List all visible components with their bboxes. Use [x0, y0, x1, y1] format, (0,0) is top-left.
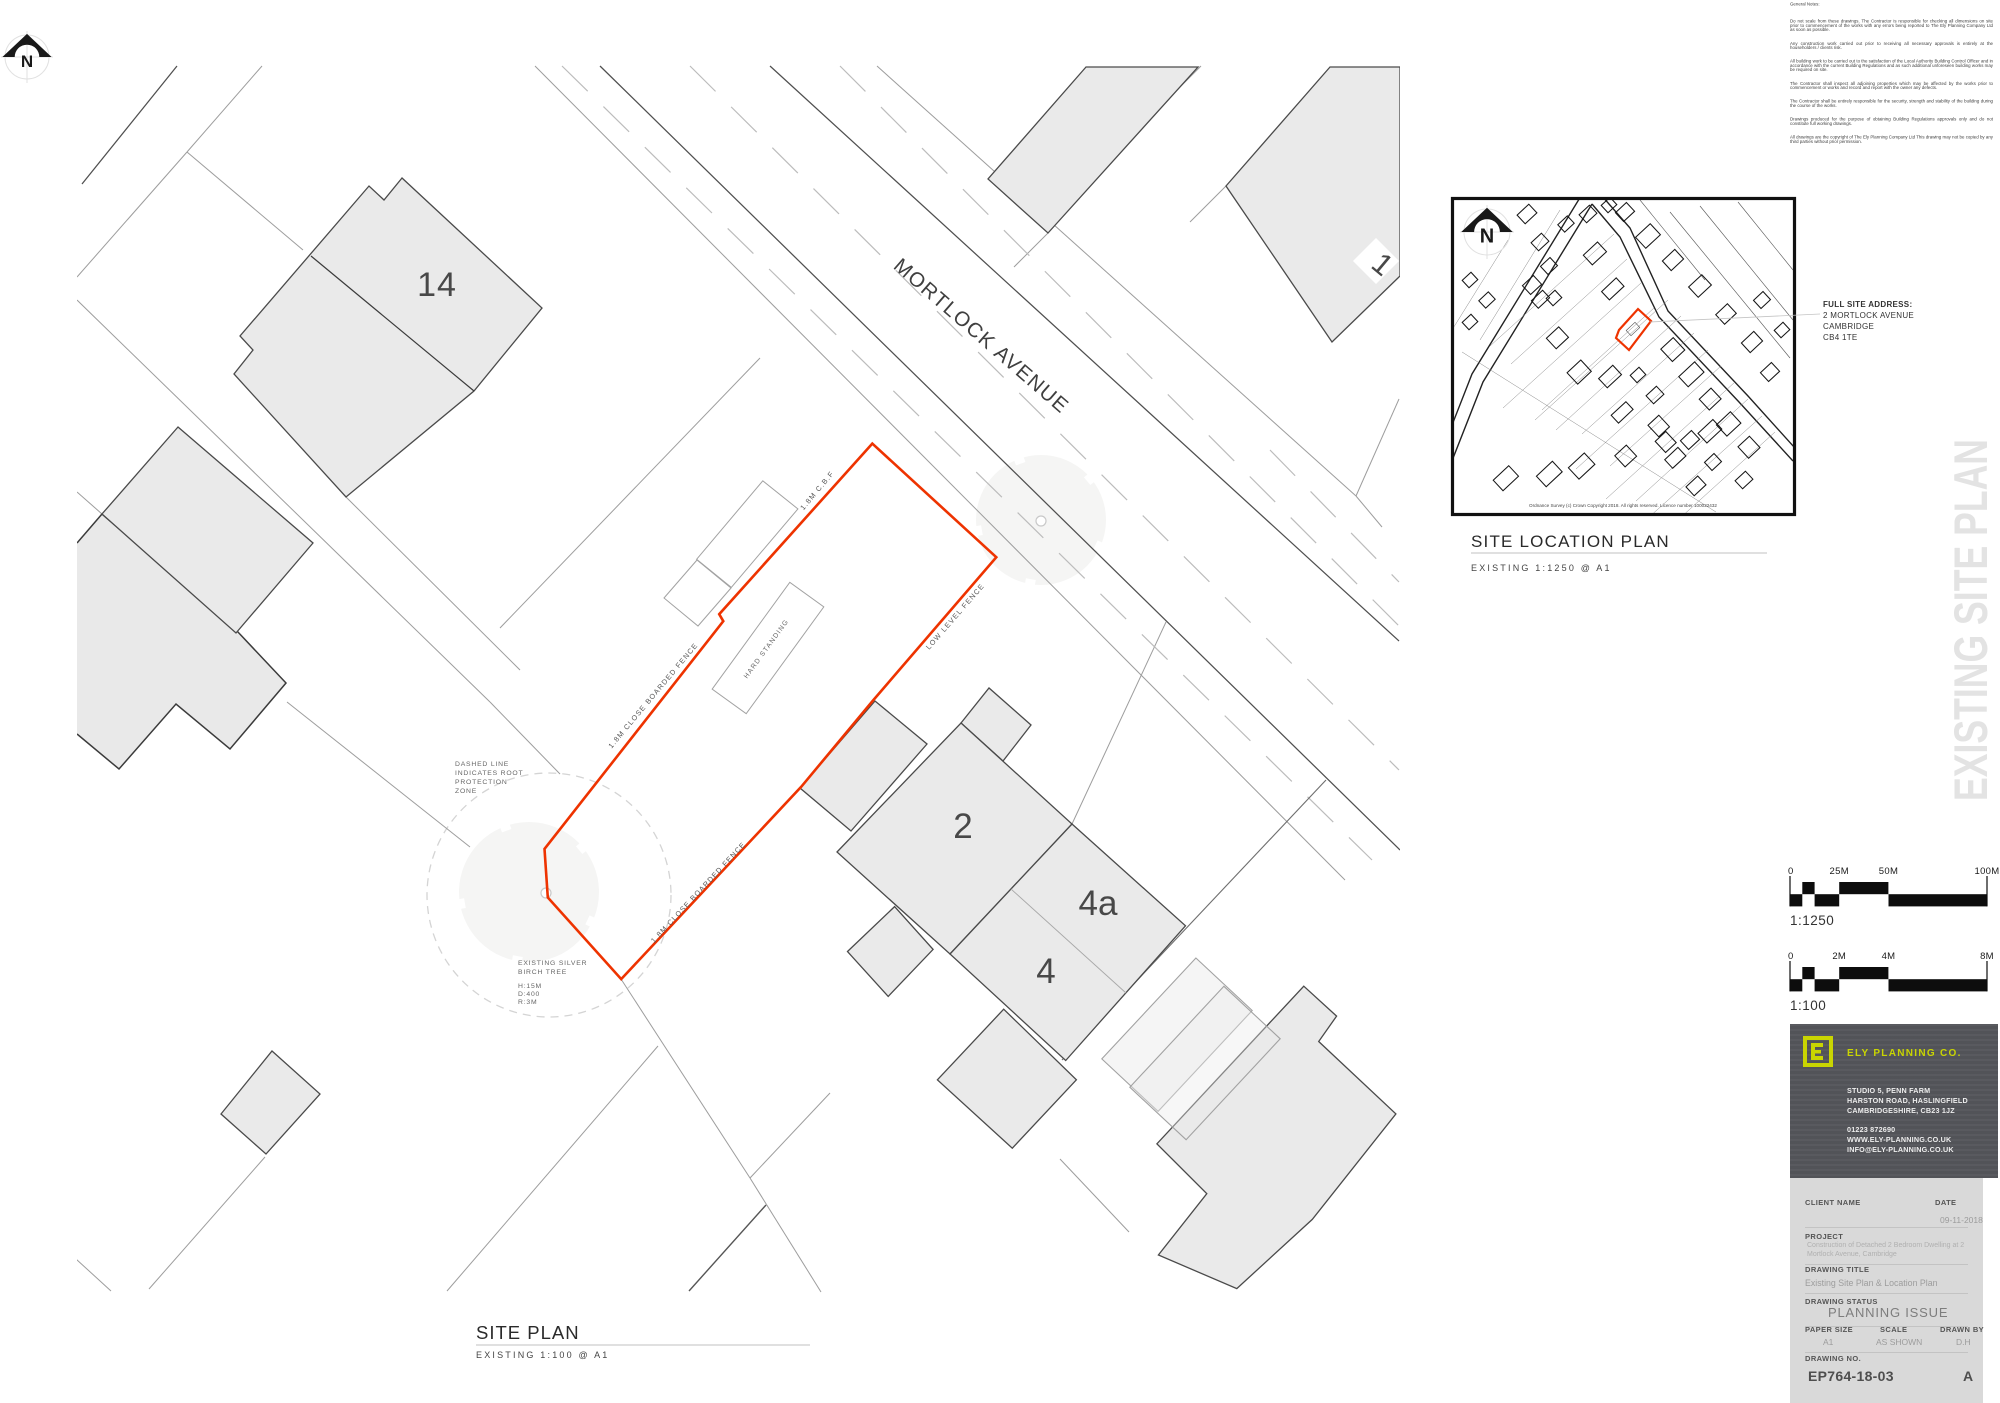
svg-text:0: 0	[1788, 951, 1794, 962]
svg-text:D:400: D:400	[518, 991, 540, 998]
svg-text:EXISTING SILVER: EXISTING SILVER	[518, 960, 587, 967]
svg-text:SITE LOCATION PLAN: SITE LOCATION PLAN	[1471, 532, 1670, 551]
svg-text:Ordnance Survey (c) Crown Copy: Ordnance Survey (c) Crown Copyright 2018…	[1529, 503, 1717, 508]
svg-text:CB4 1TE: CB4 1TE	[1823, 333, 1858, 342]
svg-text:N: N	[21, 52, 33, 71]
svg-text:4: 4	[1036, 952, 1055, 991]
svg-text:4a: 4a	[1079, 884, 1118, 923]
svg-text:EXISTING 1:100 @ A1: EXISTING 1:100 @ A1	[476, 1350, 609, 1360]
svg-text:4M: 4M	[1882, 951, 1896, 962]
svg-text:PROTECTION: PROTECTION	[455, 779, 508, 786]
svg-text:14: 14	[417, 266, 457, 304]
svg-text:0: 0	[1788, 866, 1794, 877]
svg-text:2: 2	[953, 807, 972, 846]
svg-text:ZONE: ZONE	[455, 788, 477, 795]
svg-text:H:15M: H:15M	[518, 983, 542, 990]
svg-text:R:3M: R:3M	[518, 999, 537, 1006]
svg-text:8M: 8M	[1980, 951, 1994, 962]
svg-text:INDICATES ROOT: INDICATES ROOT	[455, 770, 523, 777]
svg-text:EXISTING 1:1250 @ A1: EXISTING 1:1250 @ A1	[1471, 563, 1612, 573]
svg-text:2M: 2M	[1832, 951, 1846, 962]
svg-text:50M: 50M	[1879, 866, 1898, 877]
svg-text:BIRCH TREE: BIRCH TREE	[518, 969, 567, 976]
svg-text:CAMBRIDGE: CAMBRIDGE	[1823, 322, 1874, 331]
svg-text:HARD STANDING: HARD STANDING	[743, 618, 791, 680]
svg-text:EXISTING SITE PLAN: EXISTING SITE PLAN	[1944, 439, 1997, 801]
svg-text:LOW LEVEL FENCE: LOW LEVEL FENCE	[924, 581, 986, 651]
svg-text:SITE PLAN: SITE PLAN	[476, 1322, 580, 1343]
svg-text:1:1250: 1:1250	[1790, 913, 1834, 928]
svg-text:DASHED LINE: DASHED LINE	[455, 761, 509, 768]
svg-text:1.8M CLOSE BOARDED FENCE: 1.8M CLOSE BOARDED FENCE	[606, 641, 700, 750]
svg-text:FULL SITE ADDRESS:: FULL SITE ADDRESS:	[1823, 300, 1912, 309]
svg-text:N: N	[1480, 225, 1494, 247]
svg-text:MORTLOCK AVENUE: MORTLOCK AVENUE	[889, 254, 1073, 418]
svg-text:2 MORTLOCK AVENUE: 2 MORTLOCK AVENUE	[1823, 311, 1914, 320]
svg-text:100M: 100M	[1975, 866, 2000, 877]
svg-text:1:100: 1:100	[1790, 998, 1826, 1013]
svg-text:1.8M CLOSE BOARDED FENCE: 1.8M CLOSE BOARDED FENCE	[649, 840, 748, 945]
svg-text:25M: 25M	[1830, 866, 1849, 877]
